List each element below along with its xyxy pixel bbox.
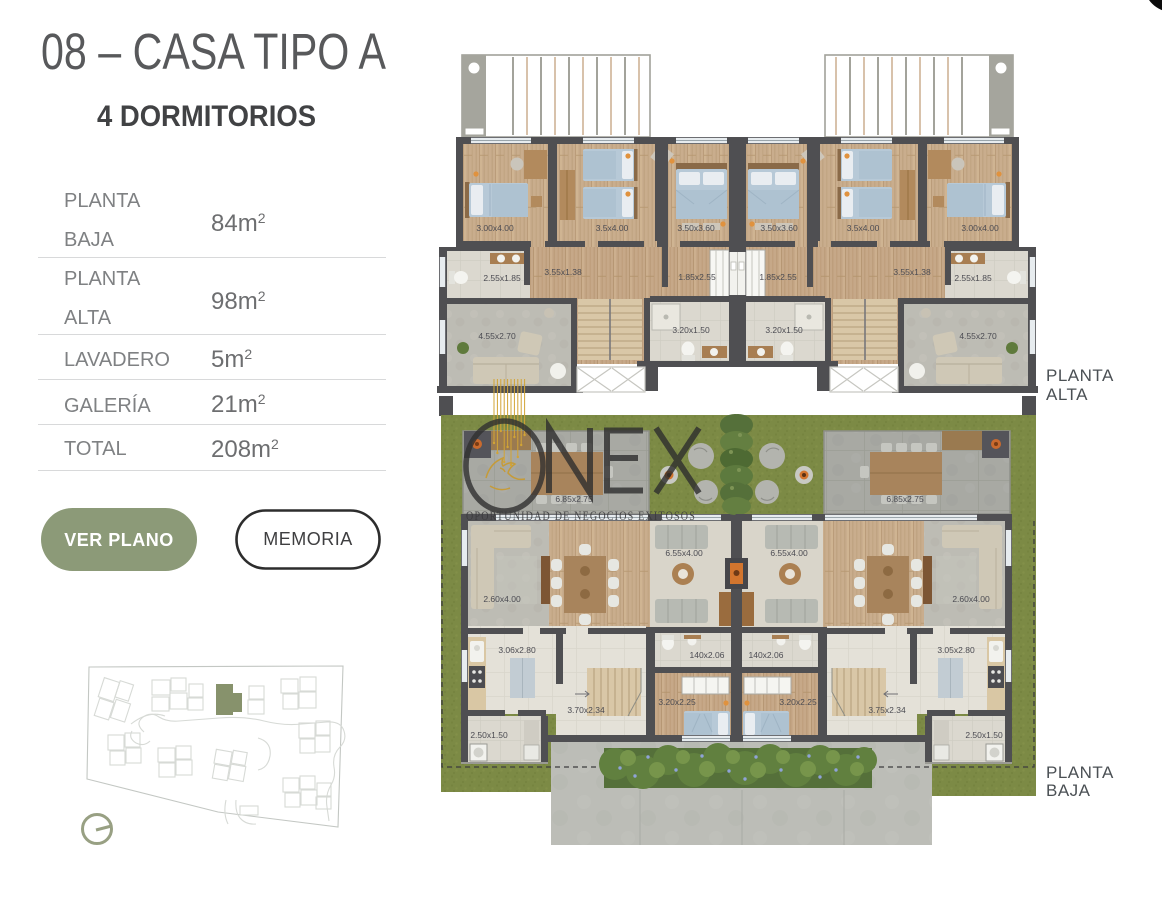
svg-text:3.55x1.38: 3.55x1.38 xyxy=(893,267,931,277)
svg-text:4.55x2.70: 4.55x2.70 xyxy=(959,331,997,341)
svg-text:3.20x1.50: 3.20x1.50 xyxy=(672,325,710,335)
svg-text:208m2: 208m2 xyxy=(211,436,279,463)
svg-text:08 – CASA TIPO A: 08 – CASA TIPO A xyxy=(41,23,386,80)
svg-text:140x2.06: 140x2.06 xyxy=(690,650,725,660)
svg-text:GALERÍA: GALERÍA xyxy=(64,394,151,417)
svg-text:PLANTA: PLANTA xyxy=(1046,763,1114,782)
svg-text:PLANTA: PLANTA xyxy=(64,190,141,212)
svg-text:LAVADERO: LAVADERO xyxy=(64,349,170,371)
svg-text:4.55x2.70: 4.55x2.70 xyxy=(478,331,516,341)
svg-text:4 DORMITORIOS: 4 DORMITORIOS xyxy=(97,100,316,133)
svg-text:2.55x1.85: 2.55x1.85 xyxy=(483,273,521,283)
svg-text:BAJA: BAJA xyxy=(1046,781,1091,800)
svg-text:PLANTA: PLANTA xyxy=(64,268,141,290)
svg-text:2.60x4.00: 2.60x4.00 xyxy=(483,594,521,604)
svg-text:3.55x1.38: 3.55x1.38 xyxy=(544,267,582,277)
svg-text:TOTAL: TOTAL xyxy=(64,438,127,460)
svg-text:3.50x3.60: 3.50x3.60 xyxy=(760,223,798,233)
svg-text:3.06x2.80: 3.06x2.80 xyxy=(498,645,536,655)
svg-text:OPORTUNIDAD DE NEGOCIOS EXITOS: OPORTUNIDAD DE NEGOCIOS EXITOSOS xyxy=(466,509,696,523)
svg-text:ALTA: ALTA xyxy=(1046,385,1088,404)
svg-text:98m2: 98m2 xyxy=(211,288,266,315)
svg-text:3.5x4.00: 3.5x4.00 xyxy=(596,223,629,233)
svg-text:ALTA: ALTA xyxy=(64,307,112,329)
svg-text:84m2: 84m2 xyxy=(211,210,266,237)
svg-text:VER PLANO: VER PLANO xyxy=(64,530,174,550)
svg-text:3.20x1.50: 3.20x1.50 xyxy=(765,325,803,335)
svg-text:BAJA: BAJA xyxy=(64,229,115,251)
svg-text:1.85x2.55: 1.85x2.55 xyxy=(678,272,716,282)
svg-text:6.55x4.00: 6.55x4.00 xyxy=(770,548,808,558)
svg-text:3.00x4.00: 3.00x4.00 xyxy=(961,223,999,233)
svg-text:140x2.06: 140x2.06 xyxy=(749,650,784,660)
svg-text:6.55x4.00: 6.55x4.00 xyxy=(665,548,703,558)
svg-text:21m2: 21m2 xyxy=(211,391,266,418)
svg-text:6.85x2.75: 6.85x2.75 xyxy=(886,494,924,504)
svg-text:3.5x4.00: 3.5x4.00 xyxy=(847,223,880,233)
svg-text:1.85x2.55: 1.85x2.55 xyxy=(759,272,797,282)
svg-text:MEMORIA: MEMORIA xyxy=(263,529,353,549)
svg-text:3.00x4.00: 3.00x4.00 xyxy=(476,223,514,233)
svg-text:6.85x2.75: 6.85x2.75 xyxy=(555,494,593,504)
svg-text:PLANTA: PLANTA xyxy=(1046,366,1114,385)
svg-text:2.50x1.50: 2.50x1.50 xyxy=(470,730,508,740)
svg-text:3.20x2.25: 3.20x2.25 xyxy=(658,697,696,707)
svg-text:3.50x3.60: 3.50x3.60 xyxy=(677,223,715,233)
svg-text:2.60x4.00: 2.60x4.00 xyxy=(952,594,990,604)
svg-text:3.75x2.34: 3.75x2.34 xyxy=(868,705,906,715)
svg-text:3.70x2.34: 3.70x2.34 xyxy=(567,705,605,715)
svg-text:2.55x1.85: 2.55x1.85 xyxy=(954,273,992,283)
svg-text:3.20x2.25: 3.20x2.25 xyxy=(779,697,817,707)
svg-text:3.05x2.80: 3.05x2.80 xyxy=(937,645,975,655)
svg-text:2.50x1.50: 2.50x1.50 xyxy=(965,730,1003,740)
